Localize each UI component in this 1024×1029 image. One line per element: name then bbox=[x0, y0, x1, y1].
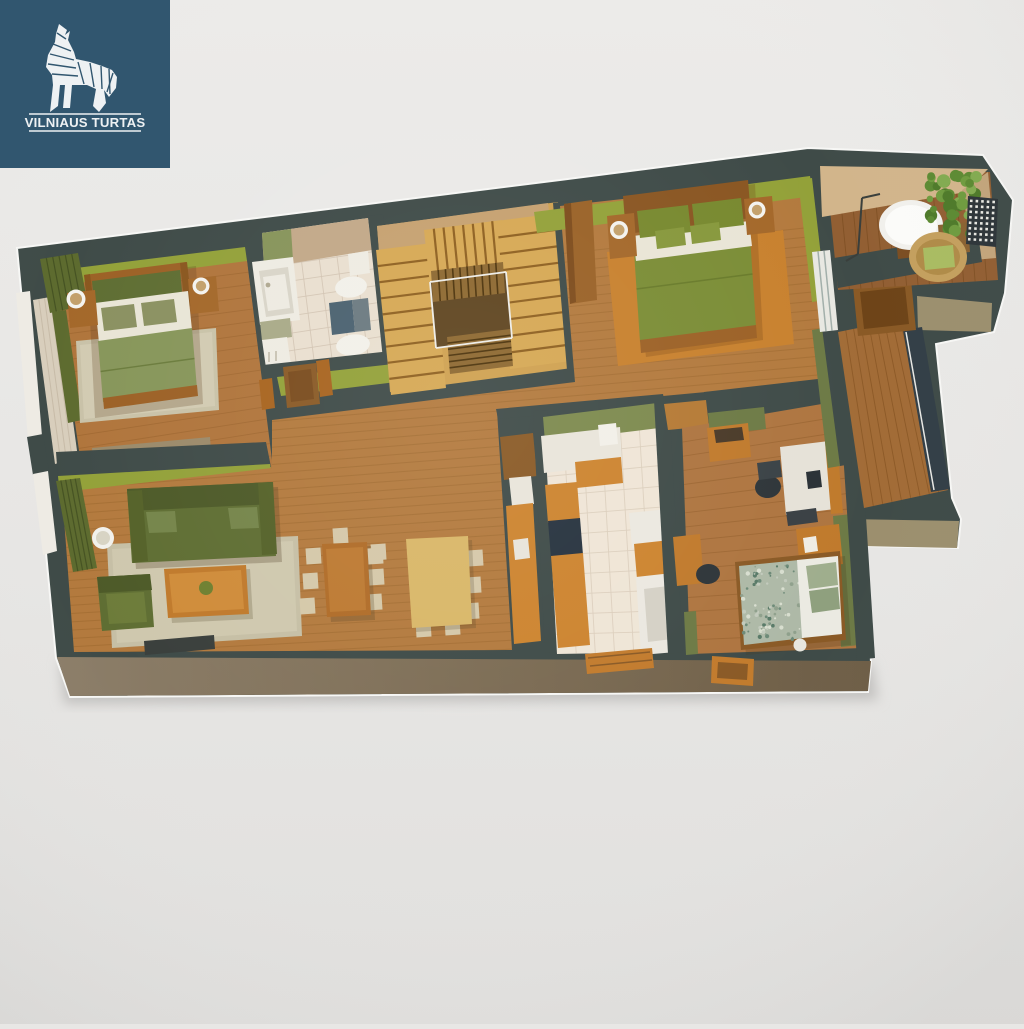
svg-text:VILNIAUS TURTAS: VILNIAUS TURTAS bbox=[25, 115, 146, 130]
